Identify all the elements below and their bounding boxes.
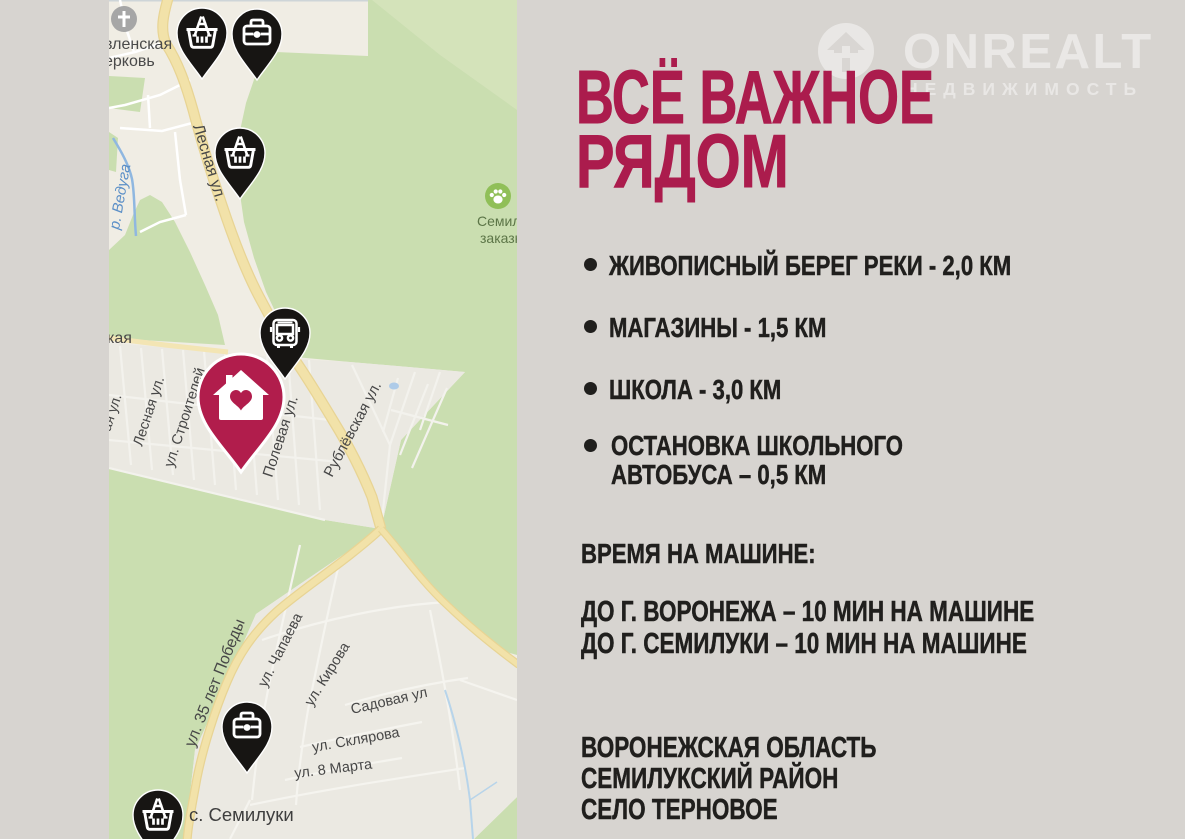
svg-text:вленская: вленская — [109, 36, 172, 53]
svg-text:заказни: заказни — [480, 230, 517, 246]
svg-text:с. Семилуки: с. Семилуки — [189, 804, 294, 825]
svg-text:ерковь: ерковь — [109, 53, 155, 70]
svg-text:кая: кая — [109, 330, 132, 347]
svg-text:Семилукс: Семилукс — [477, 213, 517, 229]
